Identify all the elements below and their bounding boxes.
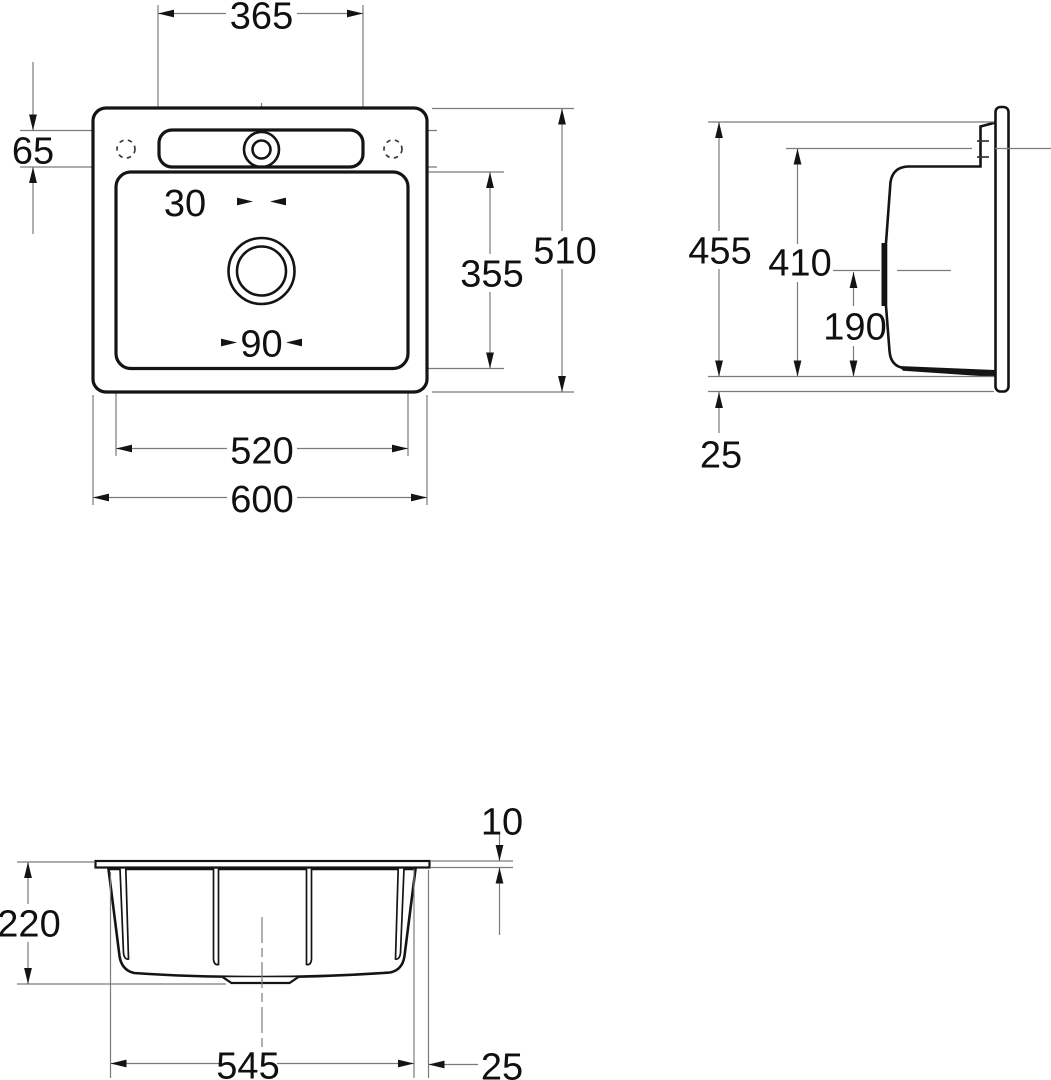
technical-drawing-page: 365 65 30 355 510 90 520 600 [0, 0, 1051, 1080]
bowl-bottom-wedge [899, 366, 995, 377]
front-view: 10 220 545 25 [0, 801, 523, 1080]
mounting-flange-side [996, 107, 1009, 392]
dim-overall-height: 455 [688, 230, 751, 272]
waste-boss-front [223, 977, 298, 983]
dim-rim-thickness: 10 [481, 801, 523, 843]
dim-overall-depth: 510 [533, 230, 596, 272]
side-sink-profile [882, 107, 1009, 392]
dim-bowl-width: 520 [230, 430, 293, 472]
bowl-rib-left [214, 869, 219, 965]
faucet-deck-plan [159, 130, 363, 167]
sink-dimension-drawing: 365 65 30 355 510 90 520 600 [0, 0, 1051, 1080]
plan-view: 365 65 30 355 510 90 520 600 [12, 0, 597, 521]
dim-flange-bottom-offset: 25 [700, 434, 742, 476]
dim-rim-overhang: 25 [481, 1046, 523, 1080]
bowl-profile-side [886, 122, 999, 373]
waste-boss-side [882, 243, 888, 306]
dim-waste-axis-height: 190 [823, 306, 886, 348]
dim-overall-width: 600 [230, 479, 293, 521]
dim-bowl-depth: 355 [460, 253, 523, 295]
side-view: 455 410 190 25 [688, 107, 1051, 476]
side-dimension-labels: 455 410 190 25 [688, 230, 886, 476]
dim-deck-depth: 65 [12, 130, 54, 172]
dim-waste-hole-diameter: 90 [240, 323, 282, 365]
bowl-rib-right [307, 869, 312, 965]
dim-tap-hole-diameter: 30 [164, 183, 206, 225]
dim-body-width: 545 [216, 1045, 279, 1080]
dim-deck-height: 410 [768, 242, 831, 284]
rim-plate-front [96, 861, 430, 868]
dim-deck-cutout-width: 365 [230, 0, 293, 37]
dim-body-height: 220 [0, 903, 61, 945]
